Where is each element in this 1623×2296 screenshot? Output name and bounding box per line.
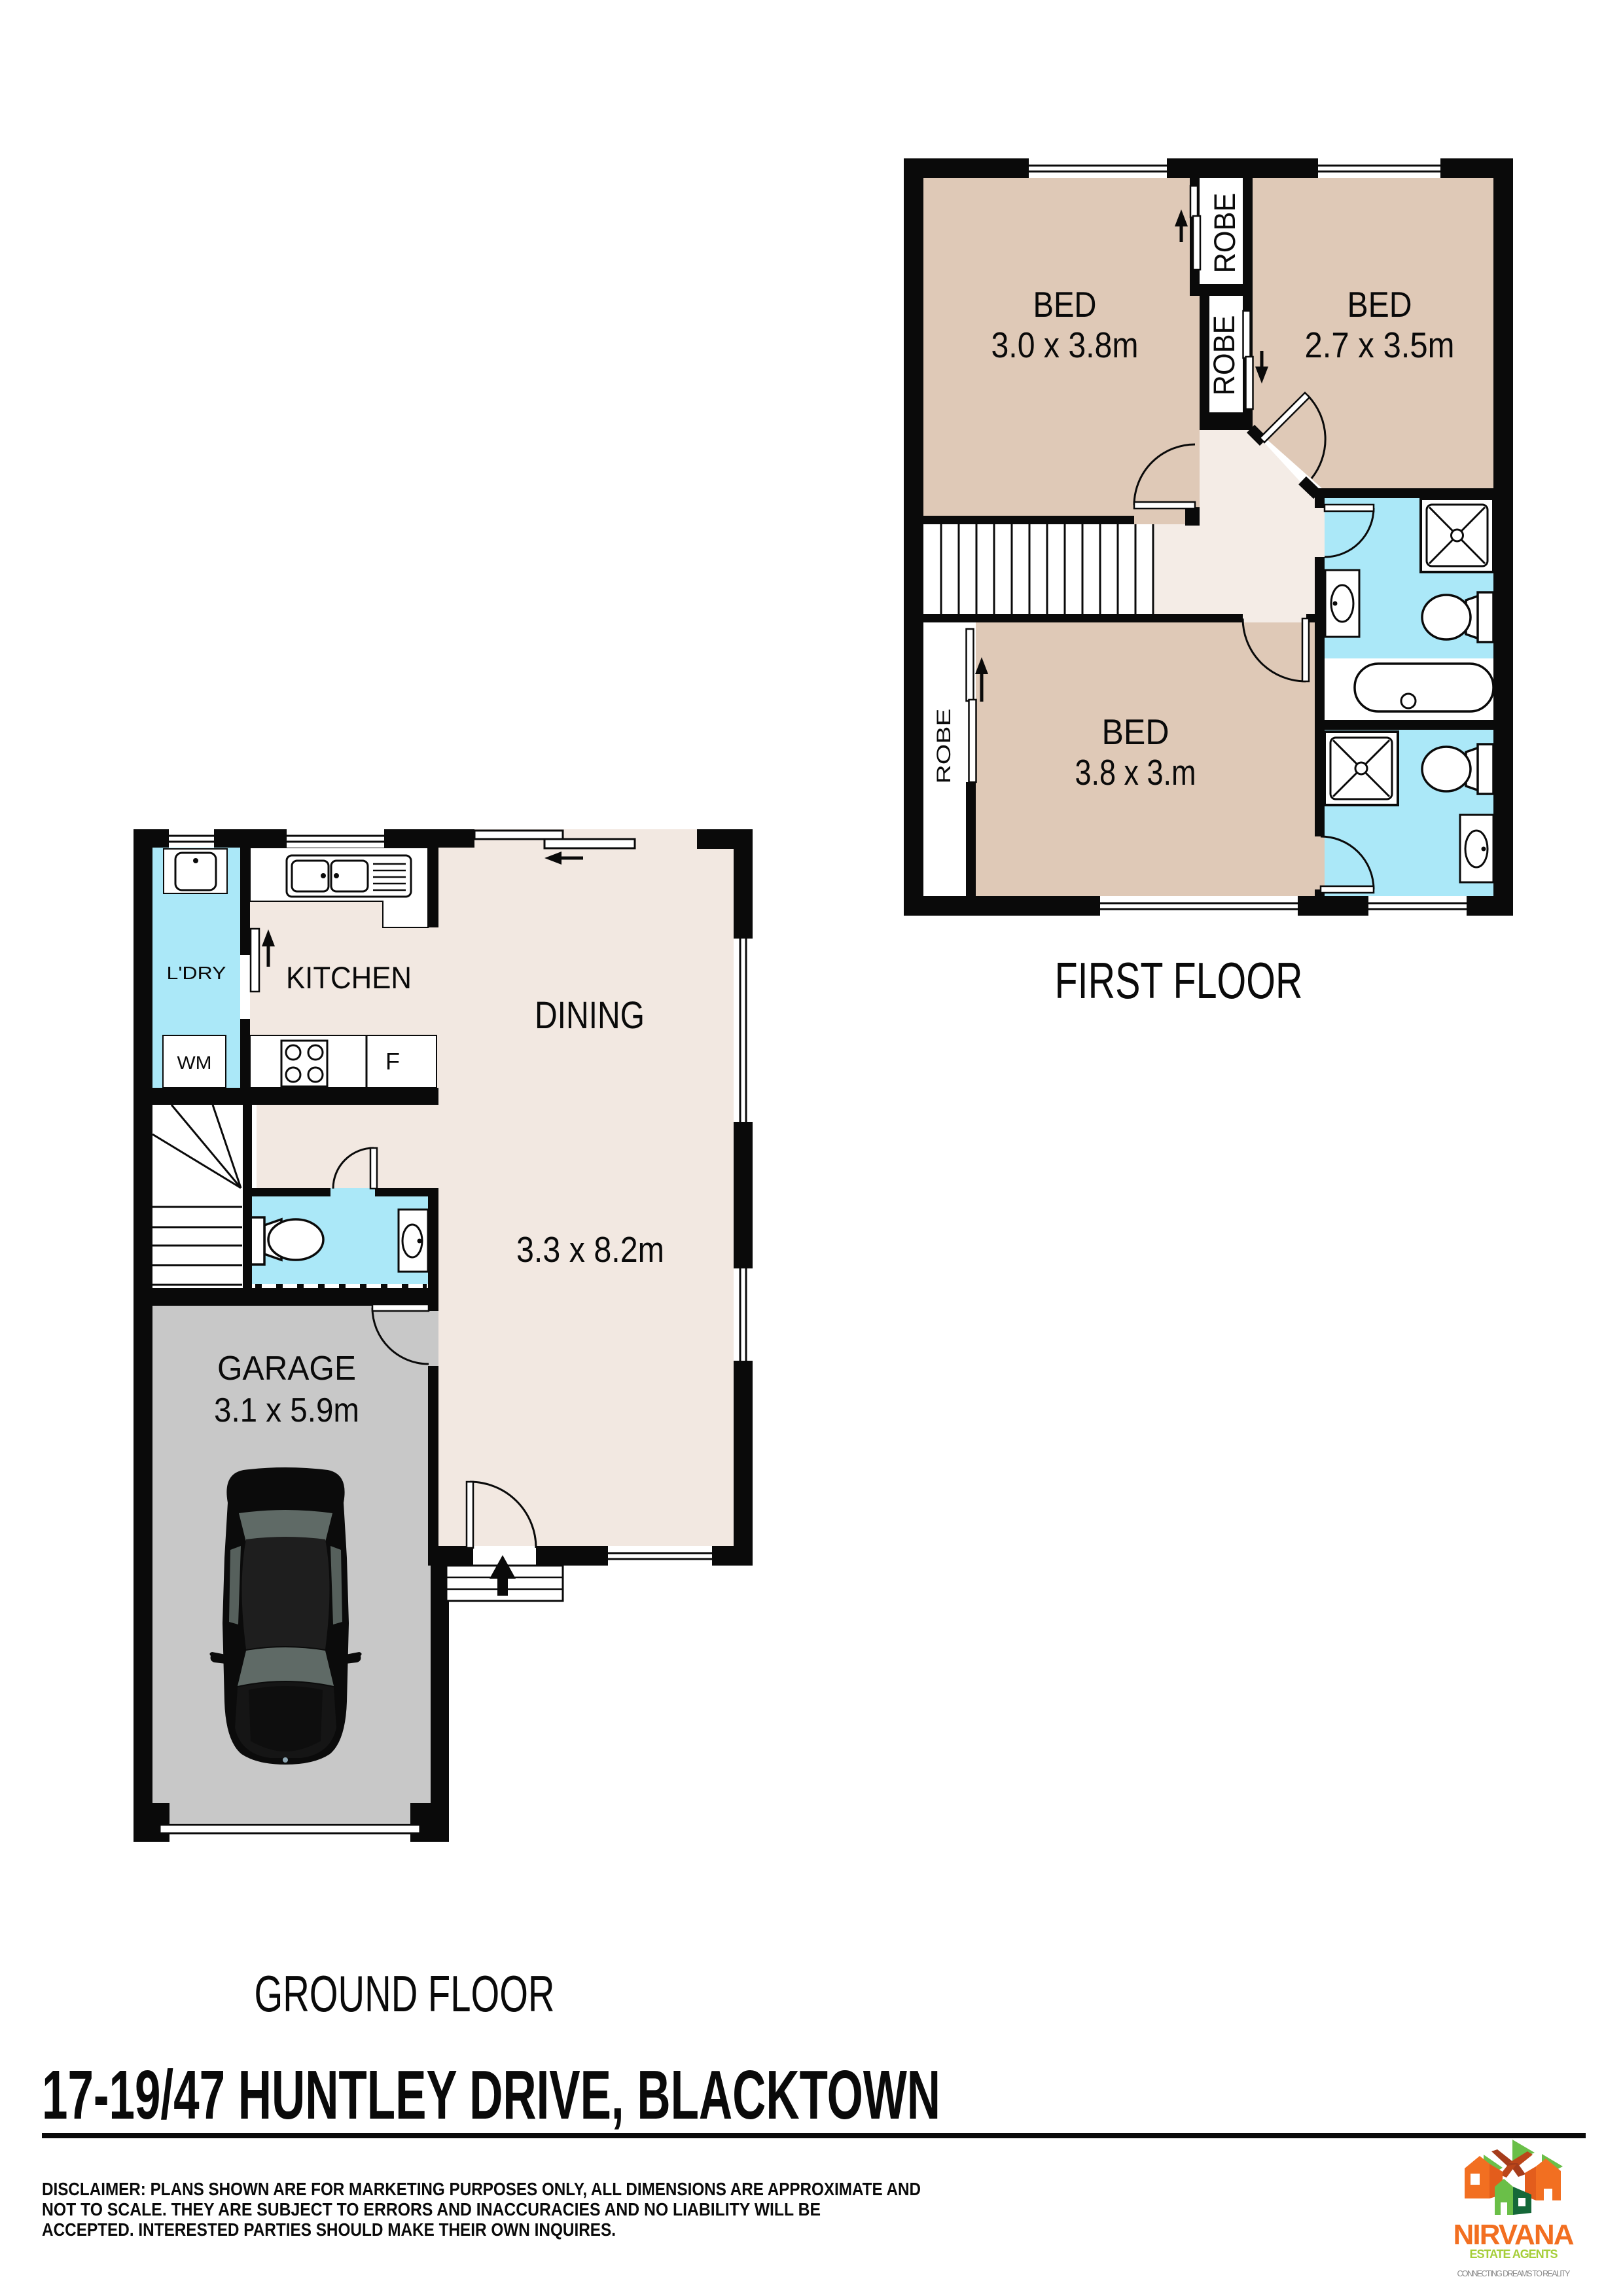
svg-text:GROUND FLOOR: GROUND FLOOR <box>255 1965 555 2022</box>
svg-text:GARAGE: GARAGE <box>217 1350 356 1388</box>
svg-text:BED: BED <box>1033 284 1097 325</box>
svg-text:DINING: DINING <box>535 994 645 1037</box>
svg-text:L'DRY: L'DRY <box>167 963 226 983</box>
svg-text:CONNECTING DREAMS TO REALITY: CONNECTING DREAMS TO REALITY <box>1457 2269 1571 2278</box>
svg-text:BED: BED <box>1347 284 1412 325</box>
svg-text:WM: WM <box>177 1052 212 1073</box>
svg-text:ROBE: ROBE <box>1208 193 1241 274</box>
svg-text:3.3 x 8.2m: 3.3 x 8.2m <box>516 1229 664 1270</box>
svg-text:3.8 x 3.m: 3.8 x 3.m <box>1075 752 1196 793</box>
svg-text:FIRST FLOOR: FIRST FLOOR <box>1055 952 1303 1009</box>
svg-text:2.7 x 3.5m: 2.7 x 3.5m <box>1305 325 1455 365</box>
svg-text:ROBE: ROBE <box>1207 315 1241 396</box>
svg-text:ROBE: ROBE <box>933 709 955 784</box>
svg-text:NIRVANA: NIRVANA <box>1454 2219 1575 2251</box>
svg-text:NOT TO SCALE. THEY ARE SUBJE: NOT TO SCALE. THEY ARE SUBJECT TO ERRORS… <box>42 2199 821 2219</box>
svg-text:DISCLAIMER: PLANS SHOWN ARE FO: DISCLAIMER: PLANS SHOWN ARE FOR MARKETIN… <box>42 2179 921 2199</box>
svg-text:ACCEPTED. INTERESTED PARTIES S: ACCEPTED. INTERESTED PARTIES SHOULD MAKE… <box>42 2219 616 2240</box>
svg-text:KITCHEN: KITCHEN <box>286 960 412 995</box>
svg-text:BED: BED <box>1102 711 1169 752</box>
svg-text:ESTATE AGENTS: ESTATE AGENTS <box>1470 2248 1558 2261</box>
svg-text:3.1 x 5.9m: 3.1 x 5.9m <box>214 1391 359 1429</box>
svg-text:3.0 x 3.8m: 3.0 x 3.8m <box>991 325 1139 365</box>
svg-text:F: F <box>385 1048 400 1075</box>
svg-text:17-19/47 HUNTLEY DRIVE, BLACKT: 17-19/47 HUNTLEY DRIVE, BLACKTOWN <box>42 2056 940 2134</box>
